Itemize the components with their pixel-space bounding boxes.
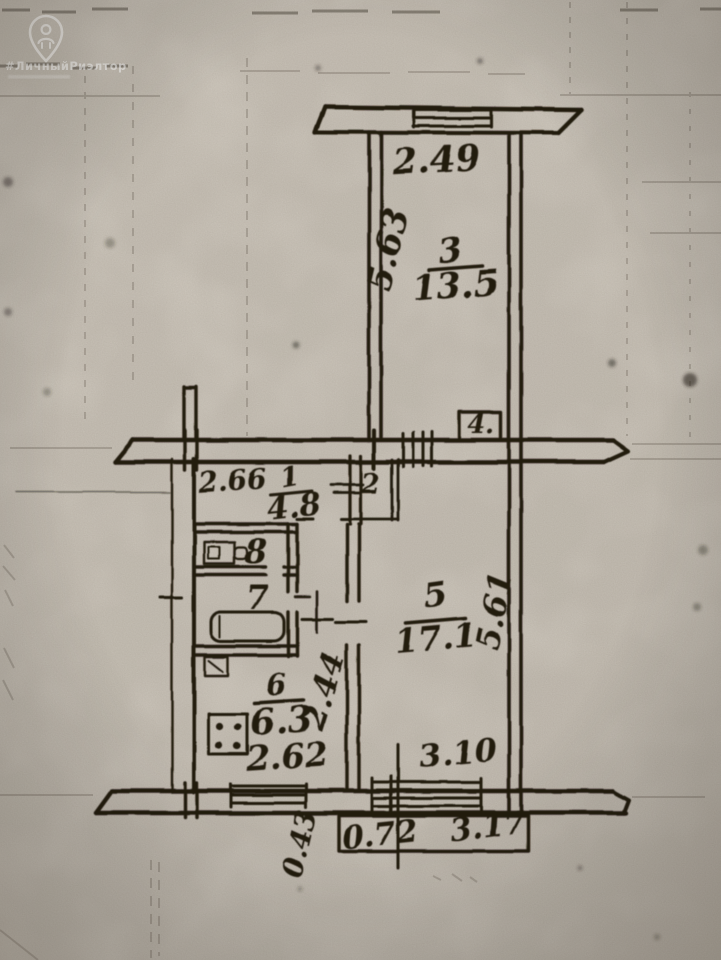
scanned-floor-plan-page: #ЛичныйРиэлтор — [0, 0, 721, 960]
photo-vignette — [0, 0, 721, 960]
